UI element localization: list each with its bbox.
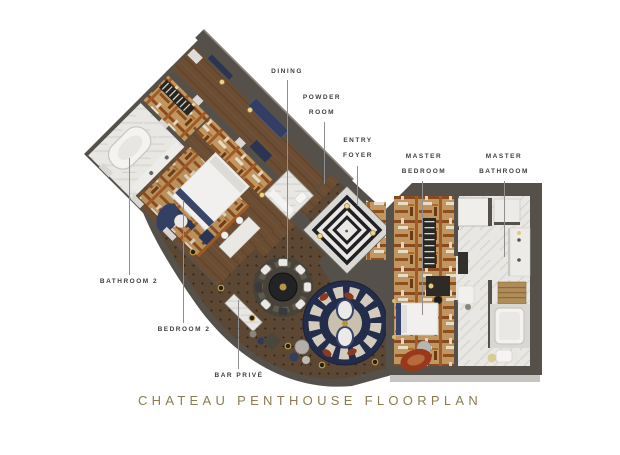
room-label-bathroom-2: BATHROOM 2 (69, 276, 189, 288)
vanity (510, 228, 530, 276)
room-label-powder-room: POWDER ROOM (262, 90, 382, 120)
room-label-master-bathroom: MASTER BATHROOM (444, 149, 564, 179)
floorplan-page: DINING POWDER ROOM ENTRY FOYER MASTER BE… (0, 0, 620, 455)
pouf (290, 353, 299, 362)
lounge-circle (303, 281, 387, 365)
wardrobe-rack (423, 218, 436, 268)
leader-line-master-bedroom (422, 181, 423, 315)
bar-stool (250, 331, 257, 338)
master-suite (386, 183, 542, 382)
room-label-bar-prive: BAR PRIVÉ (179, 370, 299, 382)
dining-table-circle (253, 257, 313, 317)
room-label-bedroom-2: BEDROOM 2 (124, 324, 244, 336)
pouf (295, 340, 309, 354)
leader-line-bathroom-2 (129, 158, 130, 275)
room-label-line: MASTER (444, 149, 564, 164)
room-label-line: ROOM (262, 105, 382, 120)
shower (458, 198, 490, 226)
leader-line-bedroom-2 (183, 200, 184, 323)
room-label-line: BATHROOM (444, 164, 564, 179)
floorplan-title: CHATEAU PENTHOUSE FLOORPLAN (0, 393, 620, 408)
leader-line-entry-foyer (357, 166, 358, 206)
room-label-dining: DINING (227, 66, 347, 78)
room-label-line: ENTRY (298, 133, 418, 148)
pouf (302, 356, 310, 364)
room-label-line: POWDER (262, 90, 382, 105)
toilet (496, 350, 512, 362)
leader-line-master-bathroom (504, 181, 505, 257)
